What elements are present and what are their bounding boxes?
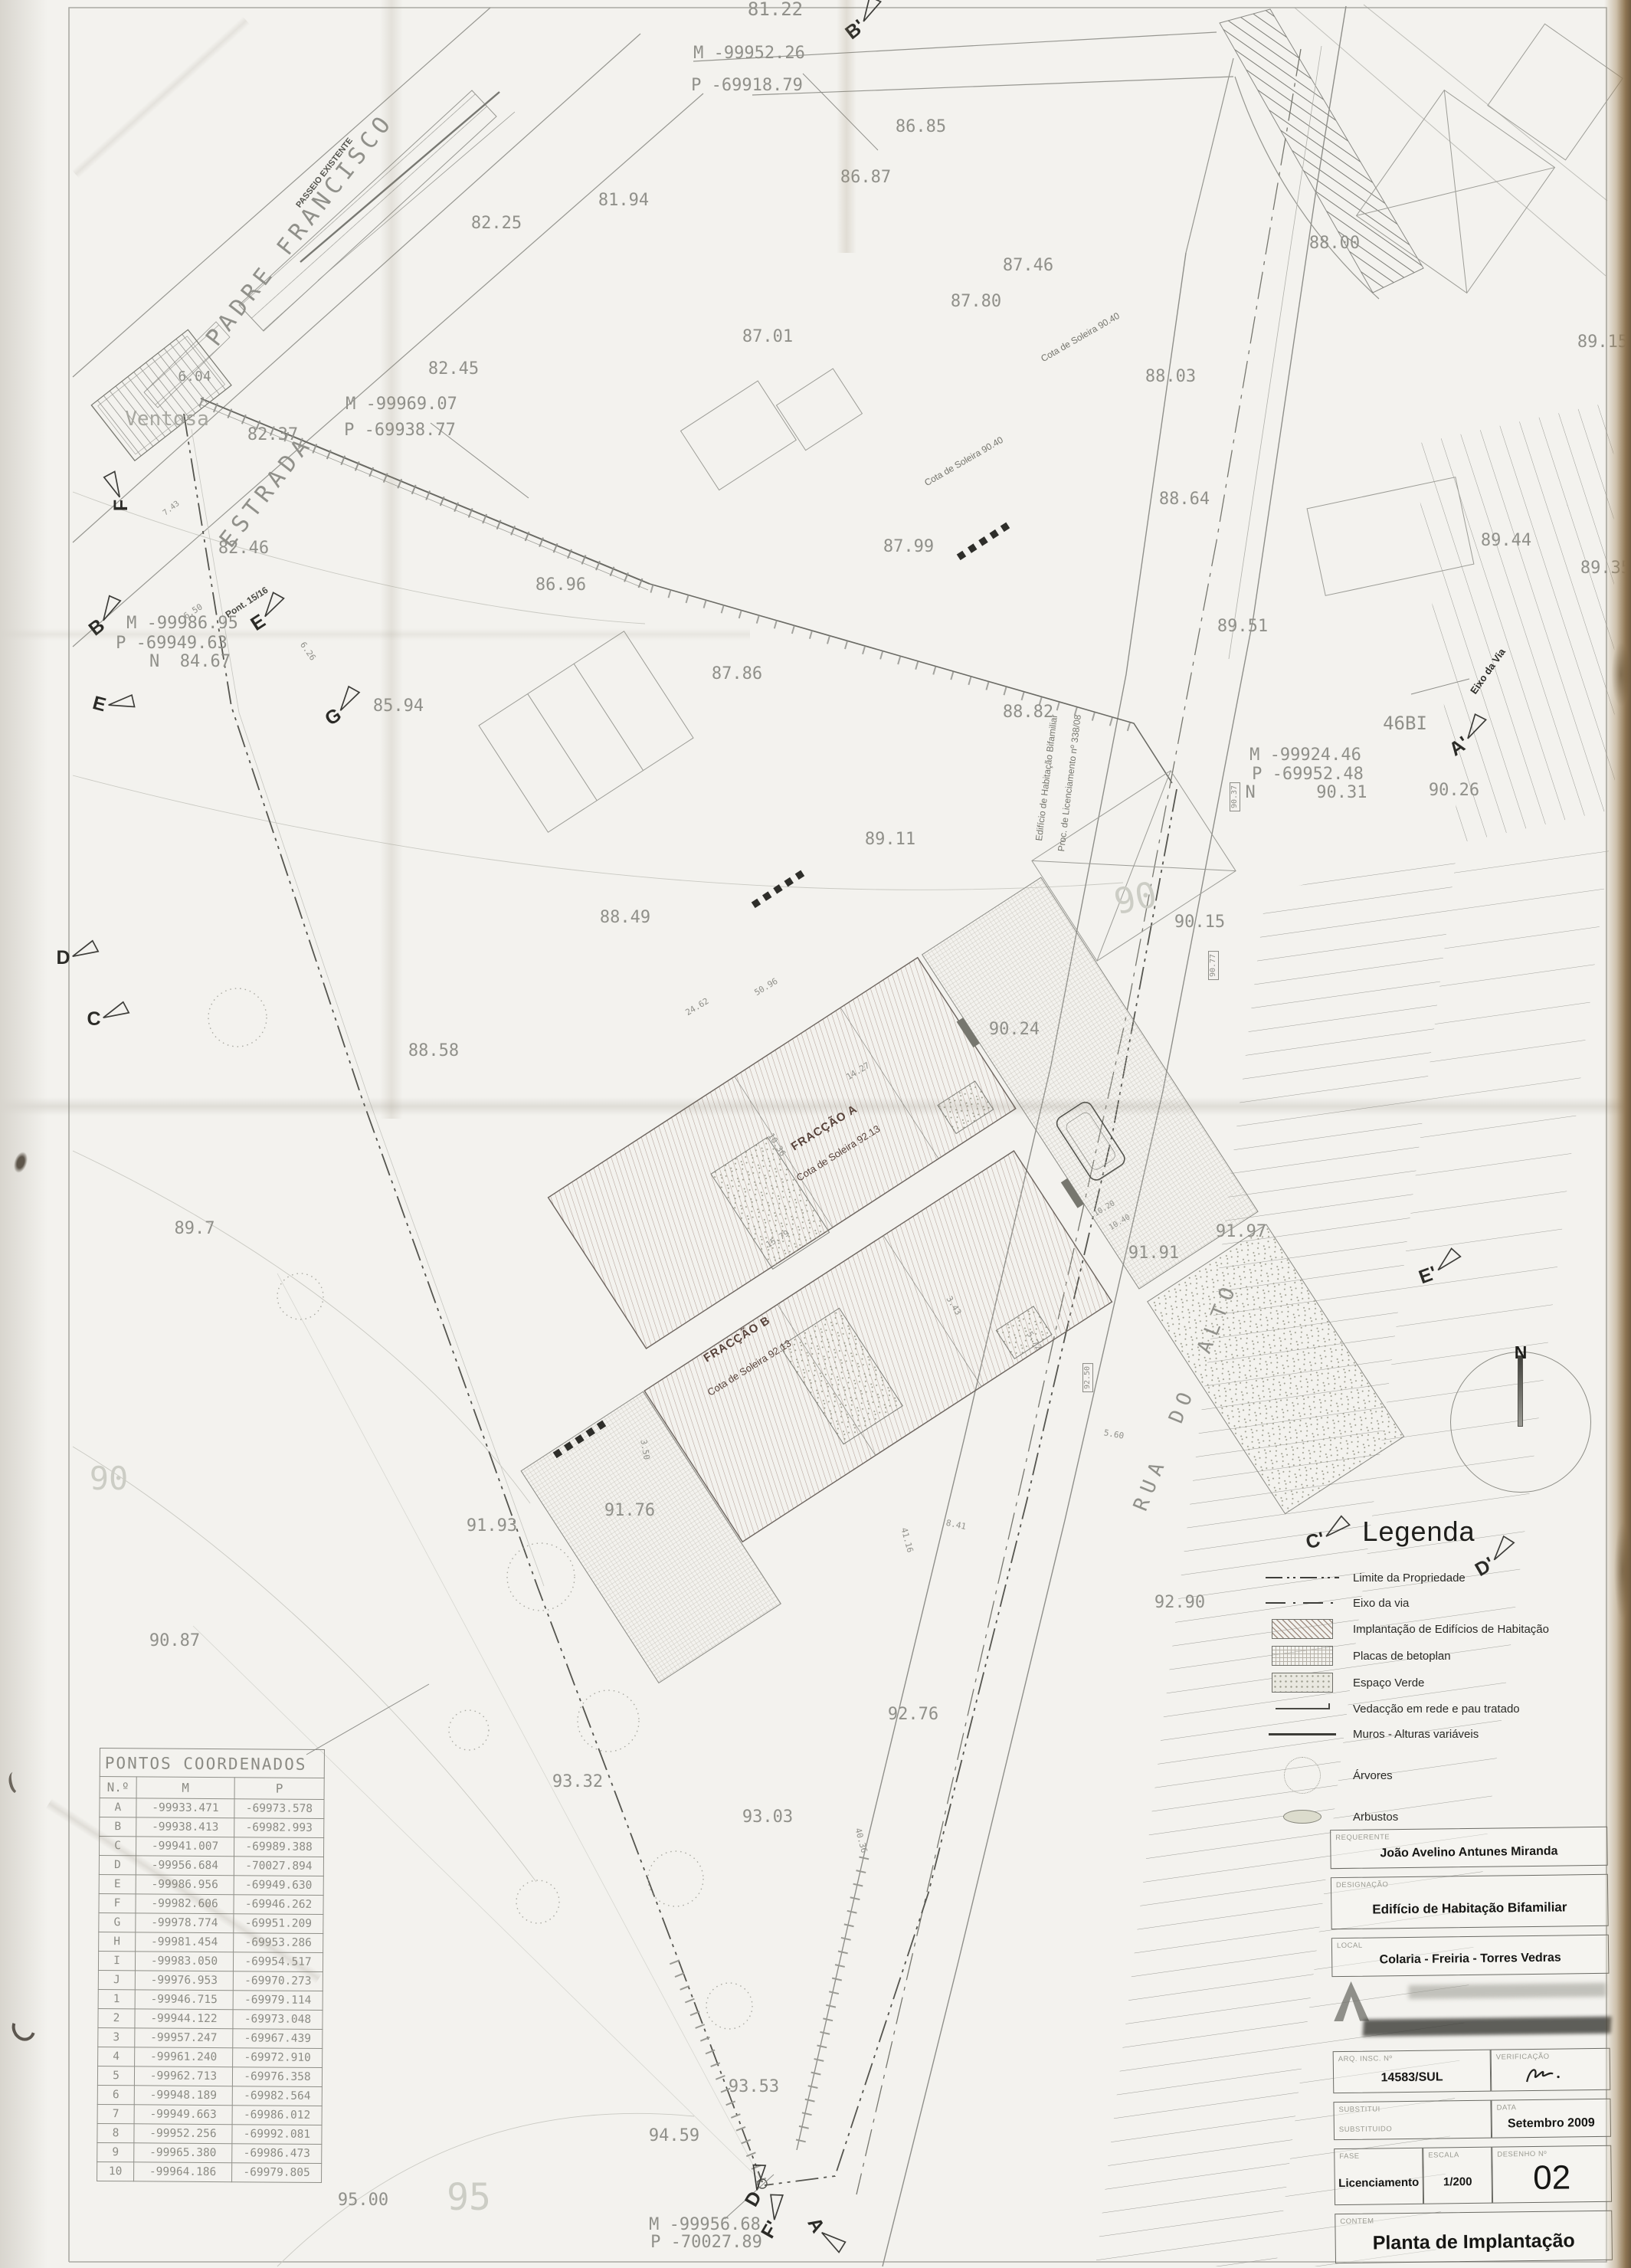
point-id: J	[98, 1970, 135, 1989]
plan-label: 91.97	[1216, 1224, 1266, 1241]
local-value: Colaria - Freiria - Torres Vedras	[1332, 1951, 1608, 1968]
point-p: -69967.439	[233, 2029, 323, 2049]
field-label: FASE	[1339, 2152, 1359, 2161]
plan-label: 87.86	[712, 666, 762, 683]
field-label: SUBSTITUIDO	[1339, 2125, 1393, 2134]
plan-label: 90	[1111, 877, 1160, 920]
section-marker-letter: C	[87, 1010, 100, 1029]
plan-label: 86.87	[840, 169, 891, 186]
plan-label: 89.7	[175, 1221, 215, 1237]
plan-label: 88.49	[600, 909, 650, 926]
field-label: ESCALA	[1428, 2151, 1459, 2159]
stamp-blur-bar	[1409, 1983, 1606, 1999]
point-p: -69982.993	[234, 1818, 324, 1838]
legend: Legenda Limite da Propriedade Eixo da vi…	[1266, 1516, 1618, 1826]
plan-label: 92.76	[888, 1706, 938, 1723]
coordinates-table: PONTOS COORDENADOS N.º M P A -99933.471 …	[97, 1748, 325, 2183]
point-p: -69946.262	[234, 1895, 323, 1915]
section-marker-letter: F	[112, 500, 131, 511]
field-verificacao: VERIFICAÇÃO	[1491, 2048, 1611, 2092]
plan-label: P -69949.63	[116, 635, 228, 652]
plan-label: 87.99	[883, 539, 934, 556]
section-marker-triangle-icon	[102, 470, 122, 499]
field-fase: FASE Licenciamento	[1334, 2148, 1423, 2205]
field-data: DATA Setembro 2009	[1491, 2099, 1611, 2139]
plan-label: 92.90	[1154, 1594, 1205, 1611]
plan-label: 81.22	[748, 0, 803, 18]
coordinates-table-row: 8 -99952.256 -69992.081	[97, 2123, 322, 2144]
field-label: VERIFICAÇÃO	[1496, 2053, 1550, 2062]
point-p: -69979.805	[232, 2163, 322, 2183]
coordinates-table-row: 4 -99961.240 -69972.910	[98, 2047, 323, 2067]
plan-label: 90	[90, 1463, 129, 1495]
legend-item: Placas de betoplan	[1266, 1646, 1618, 1666]
point-id: G	[99, 1912, 136, 1932]
point-id: 7	[97, 2104, 134, 2123]
plan-label: 93.32	[552, 1774, 603, 1791]
legend-swatch-icon	[1266, 1646, 1339, 1666]
legend-item: Muros - Alturas variáveis	[1266, 1725, 1618, 1743]
point-m: -99965.380	[134, 2143, 232, 2163]
coordinates-table-header: N.º M P	[100, 1776, 324, 1799]
point-id: A	[100, 1798, 136, 1817]
desenho-numero-value: 02	[1492, 2158, 1611, 2198]
scan-page-edge	[1604, 0, 1631, 2268]
point-p: -69970.273	[233, 1971, 323, 1991]
coordinates-table-row: 6 -99948.189 -69982.564	[97, 2085, 322, 2106]
col-header-n: N.º	[100, 1776, 136, 1798]
plan-label: N 84.67	[149, 654, 231, 670]
field-contem: CONTEM Planta de Implantação	[1335, 2211, 1613, 2263]
plan-label: 86.96	[535, 577, 586, 594]
plan-label: P -69938.77	[344, 422, 456, 439]
legend-swatch-icon	[1266, 1602, 1339, 1604]
plan-label: 91.93	[467, 1518, 517, 1535]
plan-label: 95	[447, 2179, 491, 2216]
point-m: -99949.663	[134, 2105, 232, 2125]
field-escala: ESCALA 1/200	[1423, 2147, 1492, 2204]
plan-label: 91.91	[1128, 1245, 1179, 1262]
point-m: -99976.953	[135, 1971, 233, 1991]
coordinates-table-row: 2 -99944.122 -69973.048	[98, 2008, 323, 2029]
point-p: -69951.209	[234, 1914, 323, 1934]
legend-item: Implantação de Edifícios de Habitação	[1266, 1619, 1618, 1639]
plan-label: 90.26	[1429, 782, 1479, 799]
point-m: -99946.715	[135, 1990, 233, 2010]
field-designacao: DESIGNAÇÃO Edifício de Habitação Bifamil…	[1331, 1874, 1609, 1929]
field-label: SUBSTITUI	[1339, 2105, 1380, 2114]
plan-label: 46BI	[1383, 714, 1427, 733]
legend-swatch-icon	[1266, 1619, 1339, 1639]
coordinates-table-row: 3 -99957.247 -69967.439	[98, 2027, 323, 2048]
legend-item-label: Limite da Propriedade	[1353, 1572, 1466, 1585]
coordinates-table-row: 1 -99946.715 -69979.114	[98, 1989, 323, 2010]
field-label: DATA	[1496, 2103, 1516, 2112]
legend-item-label: Vedacção em rede e pau tratado	[1353, 1703, 1520, 1716]
point-p: -69976.358	[232, 2067, 322, 2087]
point-p: -69954.517	[233, 1952, 323, 1972]
col-header-p: P	[234, 1778, 324, 1800]
paper-edge-shadow	[0, 0, 47, 2268]
point-m: -99981.454	[136, 1932, 234, 1952]
plan-label: 87.80	[951, 293, 1001, 310]
plan-label: 86.85	[896, 119, 946, 136]
section-marker-letter: D	[56, 949, 70, 968]
architect-stamp-redacted	[1332, 1977, 1610, 2049]
point-p: -70027.894	[234, 1857, 323, 1876]
plan-label: M -99969.07	[346, 396, 457, 413]
field-label: DESENHO Nº	[1497, 2150, 1547, 2159]
point-m: -99933.471	[136, 1798, 234, 1818]
point-m: -99986.956	[136, 1875, 234, 1895]
point-id: B	[100, 1817, 136, 1836]
point-m: -99961.240	[135, 2047, 233, 2067]
point-id: 1	[98, 1989, 135, 2008]
plan-label: 90.15	[1174, 914, 1225, 931]
point-id: 9	[97, 2142, 134, 2161]
legend-swatch-icon	[1266, 1757, 1339, 1794]
coordinates-table-row: B -99938.413 -69982.993	[100, 1817, 324, 1837]
plan-label: 87.46	[1003, 257, 1053, 274]
point-m: -99982.606	[136, 1894, 234, 1914]
stamp-blur-bar	[1363, 2017, 1612, 2037]
point-p: -69986.473	[232, 2144, 322, 2164]
plan-label: 94.59	[649, 2128, 699, 2145]
point-id: 5	[97, 2066, 134, 2085]
section-marker: D	[56, 939, 100, 968]
plan-label: 6.04	[178, 370, 211, 384]
legend-swatch-icon	[1266, 1577, 1339, 1578]
col-header-m: M	[136, 1777, 234, 1799]
field-desenho-numero: DESENHO Nº 02	[1492, 2145, 1612, 2204]
coordinates-table-row: A -99933.471 -69973.578	[100, 1798, 324, 1818]
section-marker-triangle-icon	[71, 939, 100, 959]
plan-label: 89.51	[1217, 618, 1268, 635]
legend-swatch-icon	[1266, 1733, 1339, 1735]
point-p: -69982.564	[232, 2086, 322, 2106]
section-marker-triangle-icon	[102, 1000, 131, 1020]
plan-label: 82.46	[218, 540, 269, 557]
plan-label: 93.53	[729, 2079, 779, 2096]
plan-label: P -70027.89	[650, 2234, 762, 2251]
field-requerente: REQUERENTE João Avelino Antunes Miranda	[1330, 1827, 1608, 1869]
point-id: 10	[97, 2161, 134, 2181]
plan-label: M -99986.95	[126, 615, 238, 632]
coordinates-table-row: 5 -99962.713 -69976.358	[97, 2066, 322, 2086]
field-substitui: SUBSTITUI SUBSTITUIDO	[1333, 2100, 1492, 2141]
plan-label: 91.76	[604, 1503, 655, 1519]
plan-label: 92.50	[1082, 1363, 1093, 1392]
field-local: LOCAL Colaria - Freiria - Torres Vedras	[1331, 1935, 1610, 1977]
field-label: ARQ. INSC. Nº	[1338, 2054, 1393, 2063]
point-m: -99952.256	[134, 2124, 232, 2144]
coordinates-table-row: I -99983.050 -69954.517	[98, 1951, 323, 1971]
point-p: -69949.630	[234, 1876, 323, 1896]
point-m: -99956.684	[136, 1856, 234, 1876]
legend-item: Limite da Propriedade	[1266, 1568, 1618, 1587]
coordinates-table-row: C -99941.007 -69989.388	[99, 1836, 323, 1857]
plan-label: 81.94	[598, 192, 649, 209]
plan-label: 95.00	[338, 2192, 388, 2209]
point-id: 8	[97, 2123, 134, 2142]
point-id: C	[99, 1836, 136, 1855]
section-marker: F	[102, 470, 131, 511]
plan-label: 88.64	[1159, 491, 1210, 508]
point-p: -69979.114	[233, 1991, 323, 2011]
field-label: REQUERENTE	[1335, 1833, 1390, 1842]
plan-label: 82.45	[428, 361, 479, 378]
coordinates-table-row: 9 -99965.380 -69986.473	[97, 2142, 322, 2163]
field-label: LOCAL	[1337, 1942, 1363, 1950]
coordinates-table-row: 10 -99964.186 -69979.805	[97, 2161, 322, 2182]
plan-label: 90.24	[989, 1021, 1040, 1038]
plan-label: 88.82	[1003, 704, 1053, 721]
point-id: 3	[98, 2027, 135, 2047]
legend-title: Legenda	[1266, 1516, 1618, 1548]
point-m: -99948.189	[134, 2086, 232, 2106]
coordinates-table-title: PONTOS COORDENADOS	[100, 1748, 325, 1778]
legend-item-label: Muros - Alturas variáveis	[1353, 1728, 1479, 1741]
point-m: -99938.413	[136, 1817, 234, 1837]
coordinates-table-row: D -99956.684 -70027.894	[99, 1855, 323, 1876]
point-id: 4	[98, 2047, 135, 2066]
coordinates-table-row: E -99986.956 -69949.630	[99, 1874, 323, 1895]
point-id: H	[99, 1932, 136, 1951]
point-p: -69973.578	[234, 1799, 324, 1819]
coordinates-table-row: 7 -99949.663 -69986.012	[97, 2104, 322, 2125]
plan-label: M -99924.46	[1249, 747, 1361, 764]
point-m: -99978.774	[136, 1913, 234, 1933]
point-p: -69986.012	[232, 2106, 322, 2125]
requerente-value: João Avelino Antunes Miranda	[1331, 1844, 1606, 1861]
plan-label: P -69918.79	[691, 77, 803, 94]
point-p: -69992.081	[232, 2125, 322, 2145]
legend-item: Espaço Verde	[1266, 1673, 1618, 1693]
plan-label: 82.25	[471, 215, 522, 232]
legend-swatch-icon	[1266, 1708, 1339, 1709]
field-label: CONTEM	[1340, 2217, 1374, 2227]
compass-needle-icon	[1518, 1355, 1523, 1427]
plan-label: 89.44	[1481, 533, 1531, 549]
point-p: -69953.286	[234, 1933, 323, 1953]
north-compass: N	[1450, 1352, 1591, 1493]
plan-label: 88.03	[1145, 369, 1196, 385]
field-arq-insc: ARQ. INSC. Nº 14583/SUL	[1333, 2050, 1492, 2094]
plan-label: N 90.31	[1246, 785, 1367, 801]
coordinates-table-row: J -99976.953 -69970.273	[98, 1970, 323, 1991]
plan-label: 89.11	[865, 831, 915, 848]
legend-swatch-icon	[1266, 1673, 1339, 1693]
point-id: F	[99, 1893, 136, 1912]
designacao-value: Edifício de Habitação Bifamiliar	[1331, 1899, 1607, 1918]
point-id: 2	[98, 2008, 135, 2027]
drawing-title: Planta de Implantação	[1336, 2230, 1612, 2255]
point-m: -99941.007	[136, 1837, 234, 1857]
plan-label: 88.00	[1309, 235, 1360, 252]
legend-item: Arbustos	[1266, 1808, 1618, 1826]
legend-item-label: Implantação de Edifícios de Habitação	[1353, 1623, 1549, 1636]
legend-item-label: Placas de betoplan	[1353, 1650, 1451, 1663]
point-m: -99964.186	[134, 2162, 232, 2182]
point-id: 6	[97, 2085, 134, 2104]
legend-swatch-icon	[1266, 1810, 1339, 1824]
site-plan-sheet: 81.22M -99952.26P -69918.7986.8586.8787.…	[0, 0, 1631, 2268]
plan-label: 90.77	[1208, 951, 1219, 980]
compass-north-label: N	[1515, 1342, 1528, 1363]
fase-value: Licenciamento	[1335, 2176, 1423, 2190]
legend-item-label: Espaço Verde	[1353, 1676, 1424, 1690]
plan-label: M -99952.26	[693, 45, 805, 62]
coordinates-table-row: H -99981.454 -69953.286	[99, 1932, 323, 1952]
legend-item: Árvores	[1266, 1757, 1618, 1794]
coordinates-table-row: F -99982.606 -69946.262	[99, 1893, 323, 1914]
field-label: DESIGNAÇÃO	[1336, 1880, 1388, 1889]
point-id: D	[99, 1855, 136, 1874]
plan-label: 90.37	[1230, 782, 1240, 811]
data-value: Setembro 2009	[1492, 2116, 1610, 2132]
plan-label: P -69952.48	[1252, 766, 1364, 783]
plan-label: Ventosa	[125, 409, 209, 429]
point-id: E	[99, 1874, 136, 1893]
arq-insc-value: 14583/SUL	[1334, 2070, 1490, 2086]
point-m: -99957.247	[135, 2028, 233, 2048]
legend-item-label: Arbustos	[1353, 1811, 1398, 1824]
point-id: I	[98, 1951, 135, 1970]
legend-item-label: Eixo da via	[1353, 1597, 1409, 1610]
plan-label: 88.58	[408, 1043, 459, 1060]
legend-item: Vedacção em rede e pau tratado	[1266, 1699, 1618, 1718]
plan-label: 85.94	[373, 698, 424, 715]
section-marker: C	[87, 1000, 130, 1029]
point-p: -69989.388	[234, 1837, 323, 1857]
coordinates-table-row: G -99978.774 -69951.209	[99, 1912, 323, 1933]
plan-label: M -99956.68	[649, 2217, 761, 2234]
point-p: -69972.910	[233, 2048, 323, 2068]
point-m: -99962.713	[134, 2066, 232, 2086]
plan-label: 87.01	[742, 329, 793, 346]
point-m: -99983.050	[135, 1952, 233, 1971]
plan-label: 93.03	[742, 1809, 793, 1826]
point-m: -99944.122	[135, 2009, 233, 2029]
legend-item: Eixo da via	[1266, 1594, 1618, 1612]
escala-value: 1/200	[1424, 2175, 1492, 2189]
point-p: -69973.048	[233, 2010, 323, 2030]
legend-item-label: Árvores	[1353, 1769, 1393, 1782]
plan-label: 90.87	[149, 1633, 200, 1650]
architect-logo-icon	[1334, 1981, 1370, 2022]
signature-icon	[1522, 2063, 1568, 2086]
